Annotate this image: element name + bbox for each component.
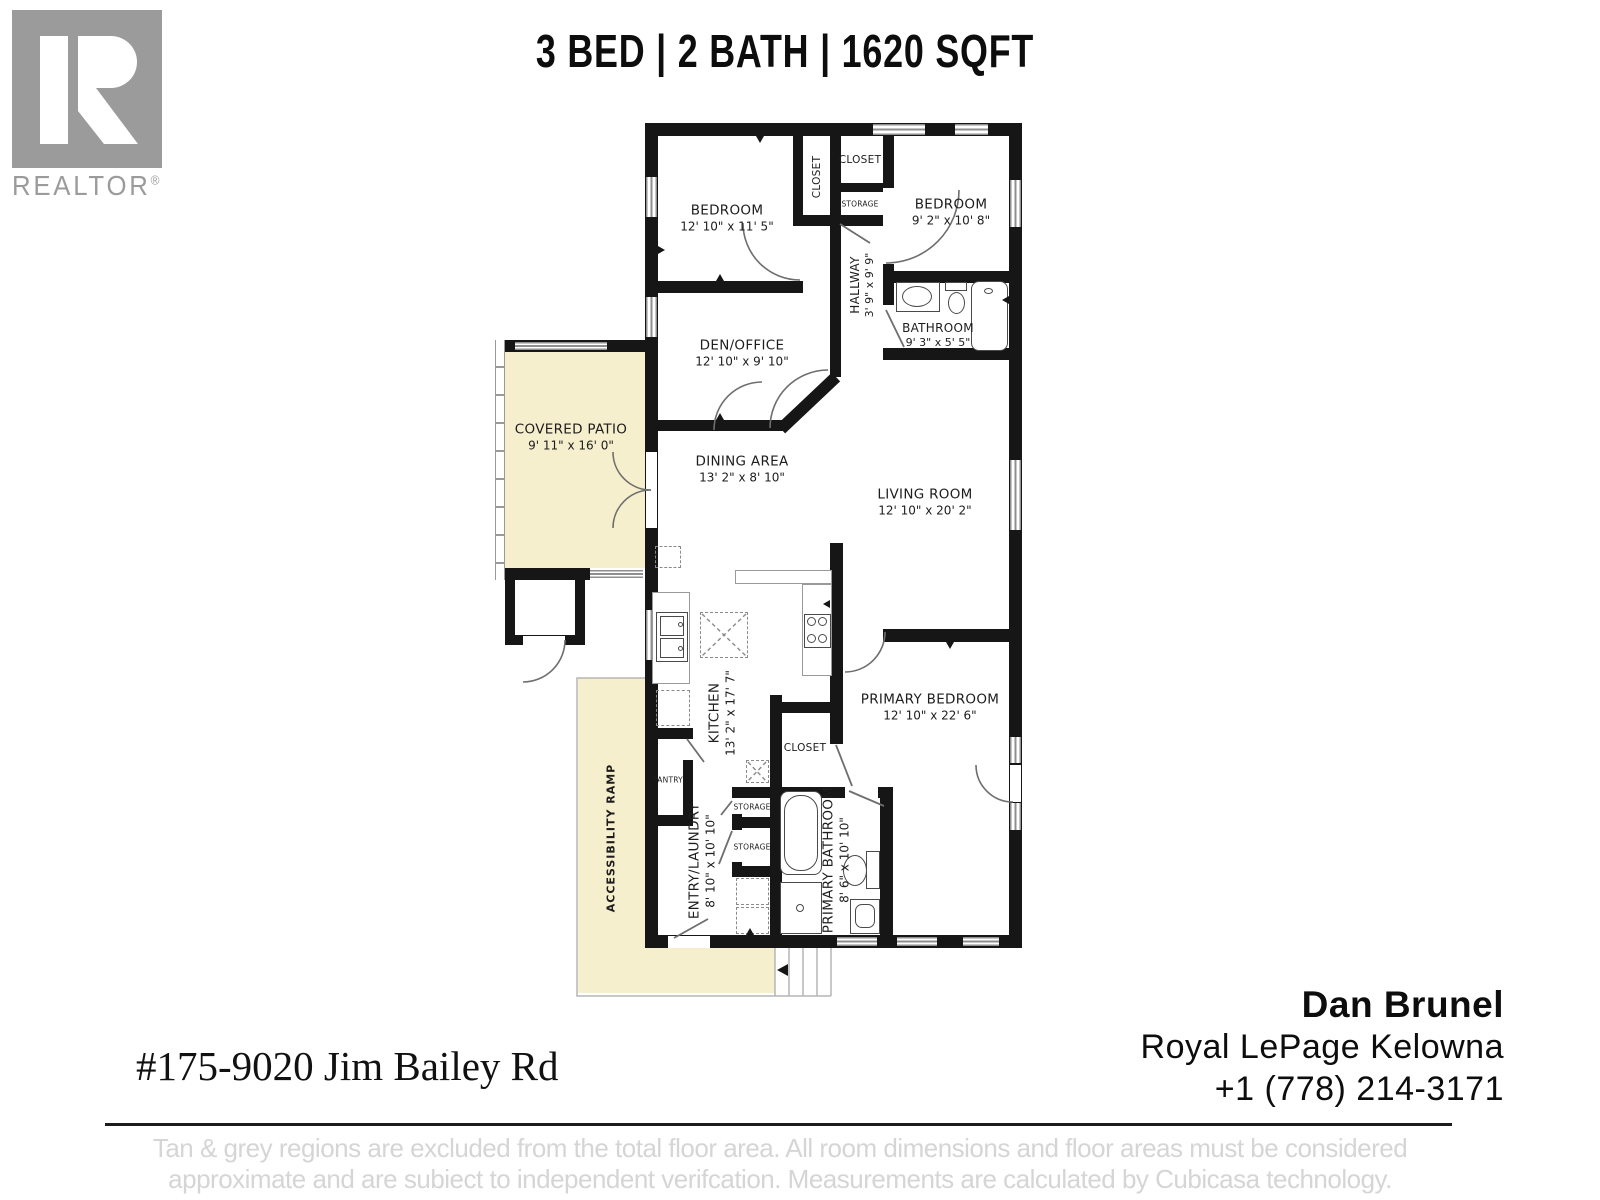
room-label-hallway: HALLWAY 3' 9" x 9' 9" — [848, 253, 876, 318]
room-label-storage-1: STORAGE — [733, 803, 770, 812]
room-label-dining-area: DINING AREA 13' 2" x 8' 10" — [696, 454, 789, 485]
room-label-closet-strip: CLOSET — [811, 156, 823, 199]
disclaimer-text: Tan & grey regions are excluded from the… — [0, 1133, 1560, 1194]
porch-door-arc — [523, 640, 565, 682]
den-door-arc-2 — [714, 382, 762, 430]
room-label-pantry: PANTRY — [653, 776, 683, 785]
room-label-bedroom-2: BEDROOM 9' 2" x 10' 8" — [912, 197, 990, 228]
steps-direction-arrow — [777, 964, 788, 976]
room-label-covered-patio: COVERED PATIO 9' 11" x 16' 0" — [515, 422, 627, 453]
agent-info: Dan Brunel Royal LePage Kelowna +1 (778)… — [1141, 982, 1504, 1110]
entry-door-leaf — [674, 919, 708, 938]
storage2-door-leaf — [719, 831, 732, 864]
disclaimer-line-2: approximate and are subiect to independe… — [0, 1164, 1560, 1195]
room-label-bedroom-1: BEDROOM 12' 10" x 11' 5" — [680, 203, 773, 234]
room-label-primary-bathroom: PRIMARY BATHROOM 8' 6" x 10' 10" — [821, 787, 852, 933]
room-label-den-office: DEN/OFFICE 12' 10" x 9' 10" — [695, 338, 788, 369]
property-address: #175-9020 Jim Bailey Rd — [136, 1042, 559, 1090]
pantry-door-leaf — [687, 739, 704, 762]
room-label-closet-mid: CLOSET — [784, 742, 827, 754]
room-label-accessibility-ramp: ACCESSIBILITY RAMP — [605, 764, 618, 913]
primary-bath-door-leaf — [849, 791, 884, 806]
room-label-closet-top: CLOSET — [839, 154, 882, 166]
disclaimer-line-1: Tan & grey regions are excluded from the… — [0, 1133, 1560, 1164]
footer-divider — [105, 1123, 1452, 1126]
agent-company: Royal LePage Kelowna — [1141, 1027, 1504, 1068]
room-label-storage-top: STORAGE — [841, 200, 878, 209]
room-label-storage-2: STORAGE — [733, 843, 770, 852]
agent-name: Dan Brunel — [1141, 982, 1504, 1027]
steps — [775, 948, 831, 996]
room-label-primary-bedroom: PRIMARY BEDROOM 12' 10" x 22' 6" — [861, 692, 999, 723]
room-label-living-room: LIVING ROOM 12' 10" x 20' 2" — [877, 487, 972, 518]
storage1-door-leaf — [721, 801, 732, 815]
patio-door-arc-2 — [613, 490, 651, 528]
primary-bedroom-door-arc — [845, 632, 885, 672]
storage-top-door-leaf — [840, 224, 870, 243]
primary-exterior-door-arc — [976, 765, 1013, 802]
agent-phone: +1 (778) 214-3171 — [1141, 1069, 1504, 1110]
room-label-kitchen: KITCHEN 13' 2" x 17' 7" — [707, 670, 738, 756]
closet-mid-door-leaf — [836, 745, 852, 786]
patio-door-arc-1 — [613, 452, 651, 490]
room-label-entry-laundry: ENTRY/LAUNDRY 8' 10" x 10' 10" — [687, 803, 718, 919]
floorplan-page: 3 BED | 2 BATH | 1620 SQFT REALTOR® — [0, 0, 1600, 1200]
room-label-bathroom: BATHROOM 9' 3" x 5' 5" — [902, 321, 974, 349]
